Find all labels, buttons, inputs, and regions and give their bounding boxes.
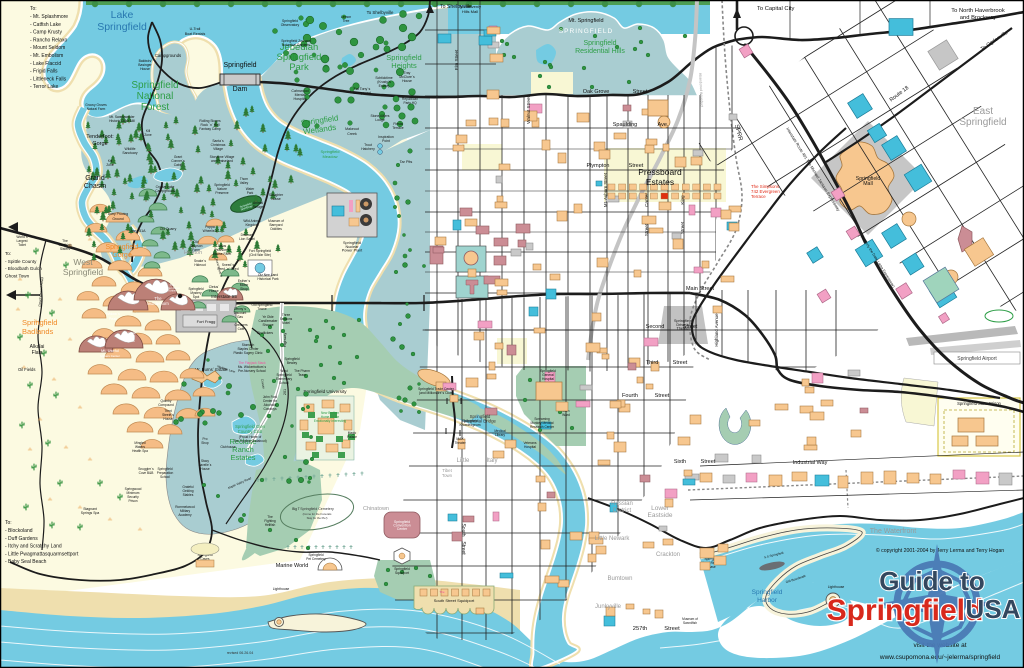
- svg-text:- Frigid Falls: - Frigid Falls: [30, 69, 58, 75]
- svg-text:Springfield: Springfield: [583, 40, 616, 47]
- svg-text:U-Trail: U-Trail: [190, 27, 201, 31]
- svg-text:House: House: [209, 289, 219, 293]
- svg-text:Russian: Russian: [611, 501, 633, 507]
- svg-text:Health Spa: Health Spa: [132, 449, 148, 453]
- svg-text:Hideout: Hideout: [194, 263, 205, 267]
- svg-text:Sixth: Sixth: [674, 459, 686, 465]
- svg-text:Mt. Springfield: Mt. Springfield: [568, 18, 603, 24]
- svg-text:Springfield: Springfield: [63, 267, 103, 277]
- svg-text:Street: Street: [655, 393, 670, 399]
- svg-text:Valley: Valley: [240, 181, 249, 185]
- svg-text:Bewley: Bewley: [287, 361, 298, 365]
- svg-text:Street: Street: [664, 626, 680, 632]
- svg-text:Pet Cemetery: Pet Cemetery: [306, 557, 326, 561]
- svg-text:Army Proving: Army Proving: [108, 212, 128, 216]
- svg-text:House: House: [140, 67, 150, 71]
- svg-text:Makeout: Makeout: [345, 127, 359, 131]
- svg-text:Stables: Stables: [183, 493, 194, 497]
- svg-text:Misters Center: Misters Center: [100, 354, 120, 358]
- svg-text:Street: Street: [680, 221, 685, 234]
- svg-text:- Lake Flaccid: - Lake Flaccid: [30, 61, 61, 67]
- svg-text:Spaulding: Spaulding: [613, 122, 637, 128]
- svg-text:Chasm: Chasm: [84, 183, 106, 190]
- svg-text:Chinatown: Chinatown: [363, 506, 389, 512]
- svg-text:Tar Pits: Tar Pits: [400, 160, 413, 164]
- svg-text:(Civil War Site): (Civil War Site): [249, 253, 271, 257]
- svg-text:Little Newark: Little Newark: [595, 536, 631, 542]
- svg-text:The Tippling Gadabout): The Tippling Gadabout): [233, 439, 266, 443]
- svg-text:- Catfish Lake: - Catfish Lake: [30, 22, 61, 28]
- svg-text:Peak: Peak: [109, 317, 117, 321]
- svg-text:Terrace: Terrace: [751, 194, 766, 199]
- svg-text:Little: Little: [457, 458, 470, 464]
- svg-text:- Baby Seal Beach: - Baby Seal Beach: [5, 559, 47, 565]
- svg-text:Badlands: Badlands: [22, 327, 54, 336]
- svg-text:Springfield: Springfield: [223, 62, 256, 69]
- svg-text:- Bloodbath Gulch: - Bloodbath Gulch: [5, 266, 42, 271]
- svg-text:Theater: Theater: [454, 441, 466, 445]
- svg-text:House: House: [271, 197, 281, 201]
- svg-text:Stay for the Pie!): Stay for the Pie!): [307, 516, 328, 520]
- svg-text:Springfield: Springfield: [22, 318, 57, 327]
- svg-text:USA: USA: [966, 594, 1021, 624]
- svg-text:South: South: [460, 523, 466, 536]
- svg-text:Highway: Highway: [283, 333, 287, 348]
- svg-text:Third: Third: [646, 360, 659, 366]
- svg-text:Toilet: Toilet: [18, 243, 26, 247]
- svg-text:To Shelbyville: To Shelbyville: [367, 10, 394, 15]
- svg-text:Lower: Lower: [651, 505, 670, 512]
- svg-text:Hellfish: Hellfish: [265, 523, 276, 527]
- svg-text:Flats: Flats: [32, 350, 43, 356]
- svg-text:Campgrounds: Campgrounds: [155, 53, 181, 58]
- svg-text:Lake: Lake: [111, 9, 134, 21]
- svg-text:Campground: Campground: [155, 189, 175, 193]
- svg-text:Park: Park: [289, 62, 309, 73]
- svg-text:Hatchery: Hatchery: [361, 147, 375, 151]
- svg-text:Squidport: Squidport: [395, 571, 409, 575]
- svg-text:Point: Point: [382, 139, 390, 143]
- svg-text:Shop: Shop: [201, 441, 209, 445]
- svg-text:House: House: [163, 417, 172, 421]
- svg-text:- Rancho Relaxo: - Rancho Relaxo: [30, 37, 67, 43]
- svg-text:Lighthouse: Lighthouse: [273, 587, 290, 591]
- svg-text:Zone: Zone: [106, 163, 113, 167]
- svg-text:To North Haverbrook: To North Haverbrook: [951, 8, 1005, 14]
- svg-text:Compound: Compound: [158, 403, 174, 407]
- svg-text:Cabin: Cabin: [174, 163, 183, 167]
- svg-text:- Mount Seldom: - Mount Seldom: [30, 45, 65, 51]
- svg-text:- Duff Gardens: - Duff Gardens: [5, 536, 38, 542]
- svg-text:Street: Street: [460, 541, 466, 555]
- svg-text:Fort Fragg: Fort Fragg: [197, 319, 216, 324]
- svg-text:Pre-Nursery School: Pre-Nursery School: [238, 369, 266, 373]
- svg-text:Mt. UsefulStrategicGraniteRese: Mt. UsefulStrategicGraniteReserve: [124, 331, 136, 343]
- svg-text:To:: To:: [5, 520, 12, 526]
- svg-text:Guide to: Guide to: [879, 566, 984, 596]
- svg-text:Compound: Compound: [353, 91, 371, 95]
- svg-text:Palace: Palace: [347, 435, 357, 439]
- svg-text:Main Street: Main Street: [686, 286, 715, 292]
- svg-text:Area 51A: Area 51A: [131, 229, 147, 233]
- svg-text:257th: 257th: [633, 626, 648, 632]
- svg-text:- Blockoland: - Blockoland: [5, 528, 33, 534]
- svg-text:Research Center: Research Center: [530, 425, 555, 429]
- svg-text:Forest: Forest: [141, 102, 170, 113]
- svg-text:Estates: Estates: [646, 177, 674, 187]
- svg-text:Springs Spa: Springs Spa: [81, 511, 100, 515]
- svg-text:National: National: [137, 91, 174, 102]
- svg-text:Bumtown: Bumtown: [607, 576, 632, 582]
- svg-text:Springfield: Springfield: [827, 594, 984, 627]
- svg-text:Street: Street: [683, 324, 698, 330]
- svg-text:Lighthouse: Lighthouse: [828, 585, 845, 589]
- svg-text:Gas: Gas: [237, 315, 243, 319]
- svg-text:Shoppe: Shoppe: [263, 323, 274, 327]
- svg-text:Springfield: Springfield: [752, 589, 783, 596]
- svg-text:- Little Pwagmattasquarmsettpo: - Little Pwagmattasquarmsettport: [5, 551, 79, 557]
- svg-text:Old Quarry: Old Quarry: [160, 227, 177, 231]
- svg-text:The Waterfront: The Waterfront: [870, 528, 916, 535]
- svg-text:Sisters: Sisters: [60, 247, 70, 251]
- svg-text:Oak Grove: Oak Grove: [583, 89, 610, 95]
- svg-text:Observatory: Observatory: [281, 23, 300, 27]
- svg-text:Shop: Shop: [240, 287, 248, 291]
- svg-text:Springfield University: Springfield University: [303, 389, 347, 394]
- svg-text:Residential Hills: Residential Hills: [575, 48, 625, 55]
- svg-text:Dam: Dam: [233, 86, 248, 93]
- svg-text:Widow´s: Widow´s: [106, 312, 120, 316]
- svg-text:Fantasy Camp: Fantasy Camp: [199, 127, 221, 131]
- svg-text:Grand: Grand: [85, 175, 105, 182]
- svg-text:Street: Street: [644, 223, 649, 236]
- svg-text:The: The: [439, 590, 445, 594]
- svg-text:Tenderfoot:: Tenderfoot:: [86, 134, 114, 140]
- svg-text:SPRINGFIELD: SPRINGFIELD: [559, 28, 613, 35]
- svg-text:Town: Town: [442, 473, 453, 478]
- svg-text:Estates: Estates: [230, 453, 255, 462]
- svg-text:Cove B&B: Cove B&B: [139, 471, 154, 475]
- svg-text:King: King: [680, 195, 685, 205]
- svg-text:Historical Park: Historical Park: [257, 277, 279, 281]
- svg-text:- Littleneck Falls: - Littleneck Falls: [30, 76, 67, 82]
- svg-text:(and Millionaire´s Club): (and Millionaire´s Club): [419, 391, 453, 395]
- svg-text:East: East: [973, 106, 993, 117]
- svg-text:Pressboard: Pressboard: [638, 167, 682, 177]
- svg-text:Oil Fields: Oil Fields: [18, 367, 35, 372]
- svg-text:Italy: Italy: [486, 458, 497, 464]
- svg-text:and Praiseland: and Praiseland: [211, 159, 233, 163]
- svg-text:Gorge: Gorge: [112, 252, 132, 259]
- svg-text:Fourth: Fourth: [622, 393, 638, 399]
- svg-text:Springfield Cemetery: Springfield Cemetery: [300, 507, 334, 511]
- svg-text:and Brockway: and Brockway: [960, 15, 997, 21]
- svg-text:www.csupomona.edu/~jelerma/spr: www.csupomona.edu/~jelerma/springfield: [879, 654, 1001, 661]
- svg-text:© copyright 2001-2004 by Jerry: © copyright 2001-2004 by Jerry Lerma and…: [876, 547, 1004, 554]
- svg-text:Park: Park: [247, 191, 254, 195]
- svg-text:Springfield: Springfield: [959, 117, 1006, 128]
- svg-text:Murderhorn: Murderhorn: [147, 301, 169, 306]
- svg-text:Ground: Ground: [112, 217, 123, 221]
- svg-text:Sanctuary: Sanctuary: [122, 151, 138, 155]
- svg-text:Eastside: Eastside: [648, 512, 673, 519]
- svg-text:Canter: Canter: [644, 193, 649, 207]
- svg-text:Springfield: Springfield: [131, 80, 178, 91]
- svg-text:Junkyville: Junkyville: [595, 604, 622, 610]
- svg-text:- Itchy and Scratchy Land: - Itchy and Scratchy Land: [5, 544, 62, 550]
- svg-text:Village: Village: [213, 147, 223, 151]
- svg-text:To:: To:: [5, 251, 11, 256]
- svg-text:Knowledgeum: Knowledgeum: [460, 423, 481, 427]
- svg-text:- Terror Lake: - Terror Lake: [30, 84, 58, 90]
- svg-text:Towne: Towne: [257, 307, 266, 311]
- svg-text:Lodge: Lodge: [375, 118, 385, 122]
- svg-text:Zone: Zone: [144, 133, 151, 137]
- svg-text:Walnut Street: Walnut Street: [526, 95, 531, 123]
- svg-text:West: West: [73, 257, 93, 267]
- svg-text:South Street Squidport: South Street Squidport: [434, 598, 475, 603]
- svg-text:Preserve: Preserve: [215, 191, 228, 195]
- svg-text:Second: Second: [646, 324, 665, 330]
- svg-text:Boat Rentals: Boat Rentals: [185, 32, 206, 36]
- svg-text:Gorge: Gorge: [92, 141, 107, 147]
- svg-text:District: District: [613, 508, 632, 514]
- svg-text:Terrace: Terrace: [392, 126, 403, 130]
- svg-text:Motel: Motel: [282, 321, 290, 325]
- svg-text:- Mt. Splashmore: - Mt. Splashmore: [30, 14, 68, 20]
- svg-text:Lion Safari: Lion Safari: [239, 237, 255, 241]
- svg-text:Harbor: Harbor: [757, 597, 778, 604]
- svg-text:Swordfish: Swordfish: [683, 621, 697, 625]
- svg-text:Plympton: Plympton: [587, 163, 610, 169]
- svg-text:Academy: Academy: [178, 513, 192, 517]
- svg-text:201: 201: [283, 389, 287, 395]
- svg-text:Prison: Prison: [128, 499, 137, 503]
- svg-text:Creek: Creek: [347, 132, 357, 136]
- svg-text:Springfield Airport: Springfield Airport: [957, 356, 997, 362]
- svg-text:Team: Team: [298, 373, 306, 377]
- svg-text:Ave.: Ave.: [658, 122, 669, 128]
- svg-text:Street: Street: [701, 459, 716, 465]
- svg-text:Country Club: Country Club: [238, 429, 263, 434]
- svg-text:Botanical Gardens: Botanical Gardens: [282, 43, 310, 47]
- svg-text:Ghost Town: Ghost Town: [5, 273, 30, 278]
- svg-text:Moose Farm: Moose Farm: [213, 252, 232, 256]
- svg-text:- Spittle County: - Spittle County: [5, 259, 37, 264]
- svg-text:House: House: [200, 467, 209, 471]
- svg-text:Street: Street: [673, 360, 688, 366]
- svg-text:Party HQ: Party HQ: [403, 101, 417, 105]
- svg-text:Emotionally Interesting: Emotionally Interesting: [314, 419, 346, 423]
- svg-text:Industrial Way: Industrial Way: [793, 460, 828, 466]
- svg-text:Heights: Heights: [391, 61, 417, 70]
- svg-text:Street: Street: [629, 163, 644, 169]
- svg-text:Refuge: Refuge: [253, 205, 264, 209]
- svg-text:Oddities: Oddities: [270, 227, 282, 231]
- svg-text:Shotlickers: Shotlickers: [257, 331, 273, 335]
- svg-text:- Camp Krusty: - Camp Krusty: [30, 30, 62, 36]
- svg-text:School: School: [160, 475, 170, 479]
- svg-text:To:: To:: [30, 6, 37, 12]
- svg-text:Mt. Auburn Street: Mt. Auburn Street: [603, 172, 608, 207]
- svg-text:Wheelie´s: Wheelie´s: [203, 229, 218, 233]
- svg-text:Kingdom: Kingdom: [245, 223, 258, 227]
- svg-text:Highland Avenue: Highland Avenue: [714, 313, 719, 347]
- svg-text:House: House: [402, 79, 412, 83]
- svg-text:Interstate 95: Interstate 95: [211, 294, 237, 299]
- svg-text:Big T: Big T: [292, 507, 299, 511]
- svg-text:Farm: Farm: [192, 248, 200, 252]
- svg-text:Springfield: Springfield: [97, 21, 147, 33]
- svg-text:Cowboys: Cowboys: [263, 407, 277, 411]
- svg-text:Hospital: Hospital: [294, 97, 307, 101]
- svg-text:Cafe: Cafe: [238, 327, 245, 331]
- svg-text:Springfield: Springfield: [105, 244, 138, 251]
- svg-text:Ward: Ward: [562, 413, 570, 417]
- svg-text:Estate): Estate): [379, 84, 390, 88]
- svg-text:Crackton: Crackton: [656, 552, 680, 558]
- svg-text:Historic Cider Mill: Historic Cider Mill: [109, 119, 135, 123]
- svg-text:Library: Library: [495, 433, 505, 437]
- svg-text:Marine World: Marine World: [276, 563, 309, 569]
- svg-text:Spot: Spot: [193, 295, 200, 299]
- svg-text:Natural Farm: Natural Farm: [87, 107, 106, 111]
- svg-text:Hills Mall: Hills Mall: [462, 9, 478, 14]
- svg-text:revised 06.26.04: revised 06.26.04: [227, 651, 254, 655]
- svg-text:Tree: Tree: [343, 19, 350, 23]
- svg-text:Street: Street: [633, 89, 648, 95]
- svg-text:Plastic Sugery Clinic: Plastic Sugery Clinic: [233, 351, 262, 355]
- svg-text:- Mt. Embolism: - Mt. Embolism: [30, 53, 63, 59]
- svg-text:Mt. Useful: Mt. Useful: [101, 348, 119, 353]
- svg-text:To Capital City: To Capital City: [757, 6, 794, 12]
- svg-text:Elm Street: Elm Street: [454, 49, 459, 70]
- svg-text:Meadow: Meadow: [322, 154, 337, 159]
- svg-text:Hospital: Hospital: [542, 377, 554, 381]
- svg-text:Hospital: Hospital: [524, 445, 536, 449]
- svg-text:School: School: [279, 381, 289, 385]
- svg-text:Clubhouse: Clubhouse: [220, 445, 235, 449]
